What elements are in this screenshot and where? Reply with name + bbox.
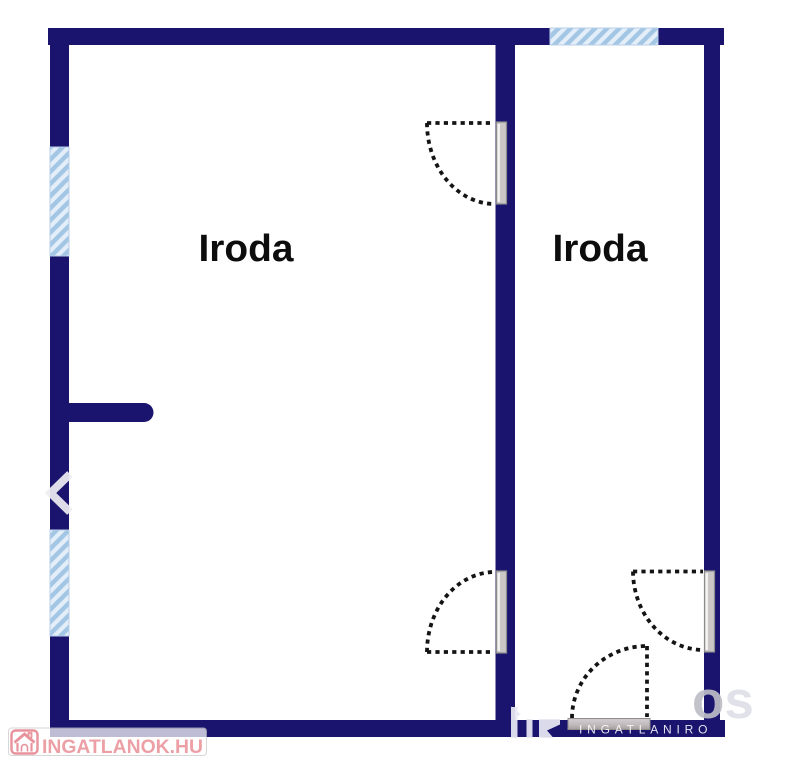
svg-text:Iroda: Iroda	[553, 228, 649, 270]
svg-text:os: os	[692, 671, 754, 730]
svg-text:INGATLANOK.HU: INGATLANOK.HU	[42, 736, 203, 758]
svg-text:Iroda: Iroda	[199, 228, 295, 270]
svg-text:INGATLANIRO: INGATLANIRO	[579, 723, 712, 737]
